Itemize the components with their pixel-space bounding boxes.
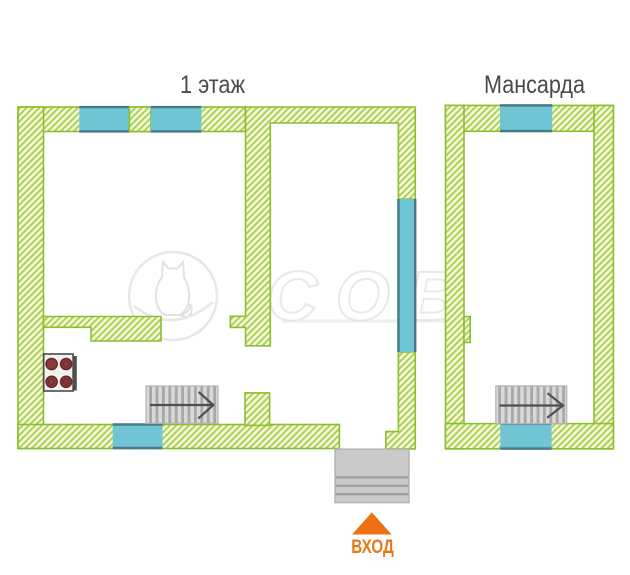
svg-text:Мансарда: Мансарда (484, 71, 585, 99)
svg-text:ВХОД: ВХОД (351, 537, 394, 558)
svg-text:1 этаж: 1 этаж (180, 71, 245, 99)
